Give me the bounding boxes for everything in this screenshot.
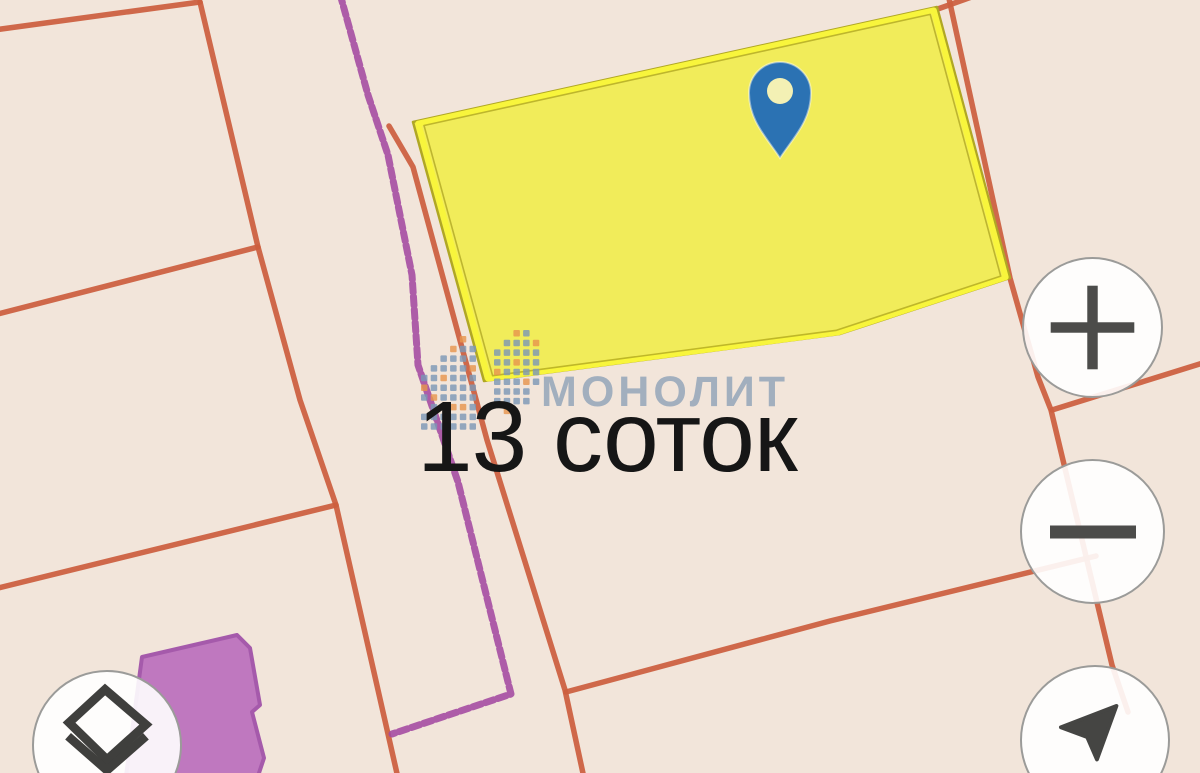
- minus-icon: [1048, 487, 1138, 577]
- watermark-logo-pixel: [504, 359, 511, 366]
- watermark-logo-pixel: [533, 359, 540, 366]
- watermark-logo-pixel: [470, 365, 477, 372]
- layers-icon: [34, 670, 180, 773]
- watermark-logo-pixel: [504, 340, 511, 347]
- zoom-in-button[interactable]: [1022, 257, 1163, 398]
- layers-button[interactable]: [32, 670, 182, 773]
- watermark-logo-pixel: [533, 340, 540, 347]
- watermark-logo-pixel: [460, 346, 467, 353]
- watermark-logo-pixel: [523, 340, 530, 347]
- watermark-logo-pixel: [513, 330, 520, 337]
- watermark-logo-pixel: [450, 365, 457, 372]
- watermark-logo-pixel: [513, 349, 520, 356]
- watermark-logo-pixel: [513, 340, 520, 347]
- location-pin-hole: [767, 78, 793, 104]
- watermark-logo-pixel: [513, 359, 520, 366]
- watermark-logo-pixel: [523, 369, 530, 376]
- watermark-logo-pixel: [504, 369, 511, 376]
- watermark-logo-pixel: [523, 330, 530, 337]
- zoom-out-button[interactable]: [1020, 459, 1165, 604]
- watermark-logo-pixel: [431, 365, 438, 372]
- parcel-boundary-line: [0, 247, 258, 315]
- watermark-logo-pixel: [533, 369, 540, 376]
- watermark-logo-pixel: [494, 359, 501, 366]
- plus-icon: [1045, 280, 1140, 375]
- watermark-logo-pixel: [460, 355, 467, 362]
- watermark-logo-pixel: [523, 349, 530, 356]
- watermark-logo-pixel: [494, 349, 501, 356]
- compass-button[interactable]: [1020, 665, 1170, 773]
- watermark-logo-pixel: [533, 349, 540, 356]
- watermark-logo-pixel: [460, 365, 467, 372]
- plot-area-label: 13 соток: [417, 387, 797, 487]
- parcel-boundary-line: [566, 556, 1096, 692]
- map-stage[interactable]: МОНОЛИТ 13 соток: [0, 0, 1200, 773]
- watermark-logo-pixel: [523, 359, 530, 366]
- watermark-logo-pixel: [513, 369, 520, 376]
- watermark-logo-pixel: [440, 355, 447, 362]
- watermark-logo-pixel: [470, 346, 477, 353]
- watermark-logo-pixel: [470, 355, 477, 362]
- watermark-logo-pixel: [450, 346, 457, 353]
- watermark-logo-pixel: [504, 349, 511, 356]
- watermark-logo-pixel: [460, 336, 467, 343]
- parcel-boundary-line: [0, 2, 200, 30]
- watermark-logo-pixel: [440, 365, 447, 372]
- watermark-logo-pixel: [450, 355, 457, 362]
- watermark-logo-pixel: [494, 369, 501, 376]
- parcel-boundary-line: [0, 505, 336, 589]
- navigation-arrow-icon: [1022, 665, 1168, 773]
